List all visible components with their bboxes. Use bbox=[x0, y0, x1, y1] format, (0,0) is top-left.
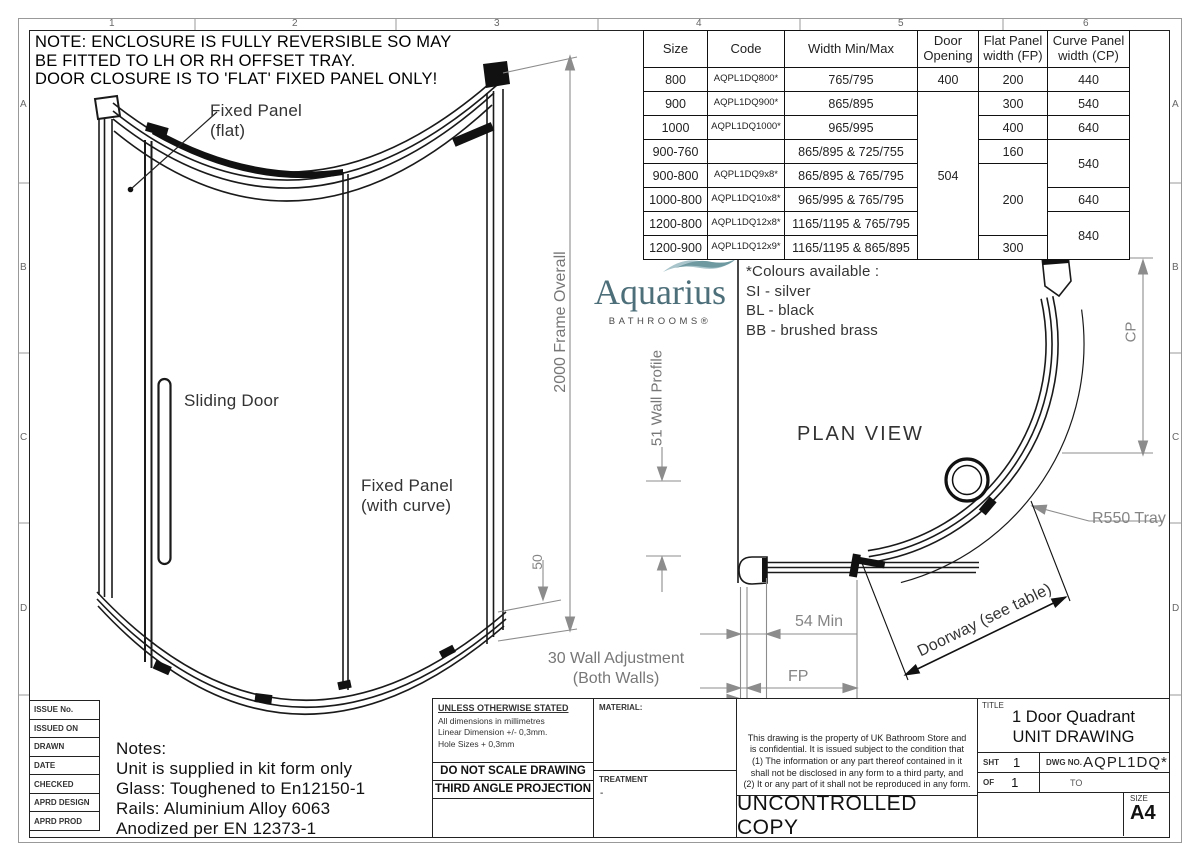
size-spec-table: Size Code Width Min/Max Door Opening Fla… bbox=[643, 30, 1130, 260]
material-label: MATERIAL: bbox=[599, 703, 731, 712]
dim-wall-profile: 51 Wall Profile bbox=[649, 350, 666, 446]
cell-code: AQPL1DQ800* bbox=[708, 68, 785, 92]
col-fp: Flat Panel width (FP) bbox=[979, 31, 1048, 68]
tolerance-title: UNLESS OTHERWISE STATED bbox=[438, 703, 588, 713]
tolerance-box: UNLESS OTHERWISE STATED All dimensions i… bbox=[432, 698, 594, 838]
dwg-label: DWG NO. bbox=[1040, 758, 1082, 767]
dim-wall-adjustment: 30 Wall Adjustment (Both Walls) bbox=[530, 649, 702, 689]
size-value: A4 bbox=[1130, 803, 1169, 824]
issue-row: ISSUE No. bbox=[30, 701, 99, 719]
third-angle: THIRD ANGLE PROJECTION bbox=[433, 780, 593, 798]
issue-row: CHECKED bbox=[30, 774, 99, 793]
cell-width: 865/895 & 765/795 bbox=[785, 164, 918, 188]
zone-row-d-left: D bbox=[20, 603, 27, 614]
cell-size: 1000 bbox=[644, 116, 708, 140]
label-r550-tray: R550 Tray bbox=[1092, 510, 1166, 528]
col-door-opening: Door Opening bbox=[918, 31, 979, 68]
label-fixed-panel-flat: Fixed Panel (flat) bbox=[210, 101, 302, 140]
uncontrolled-copy: UNCONTROLLED COPY bbox=[737, 795, 977, 836]
reversible-note: NOTE: ENCLOSURE IS FULLY REVERSIBLE SO M… bbox=[35, 33, 451, 89]
cell-code: AQPL1DQ12x9* bbox=[708, 236, 785, 260]
treatment-label: TREATMENT bbox=[599, 775, 731, 784]
do-not-scale: DO NOT SCALE DRAWING bbox=[433, 762, 593, 780]
issue-row: DATE bbox=[30, 756, 99, 775]
dim-50: 50 bbox=[529, 554, 545, 570]
zone-row-d-right: D bbox=[1172, 603, 1179, 614]
cell-width: 865/895 bbox=[785, 92, 918, 116]
cell-cp-merged: 540 bbox=[1048, 140, 1130, 188]
of-value: 1 bbox=[1011, 775, 1018, 790]
cell-size: 1200-800 bbox=[644, 212, 708, 236]
disclaimer-box: This drawing is the property of UK Bathr… bbox=[737, 698, 978, 838]
cell-size: 900-760 bbox=[644, 140, 708, 164]
zone-row-a-left: A bbox=[20, 99, 27, 110]
cell-cp: 440 bbox=[1048, 68, 1130, 92]
issue-row: ISSUED ON bbox=[30, 719, 99, 738]
cell-fp: 400 bbox=[979, 116, 1048, 140]
sht-label: SHT bbox=[978, 758, 999, 767]
dim-54-min: 54 Min bbox=[795, 613, 843, 631]
material-box: MATERIAL: TREATMENT - bbox=[594, 698, 737, 838]
cell-width: 1165/1195 & 865/895 bbox=[785, 236, 918, 260]
to-label: TO bbox=[1040, 778, 1082, 788]
colours-note: *Colours available : SI - silver BL - bl… bbox=[746, 262, 879, 340]
cell-cp: 640 bbox=[1048, 188, 1130, 212]
cell-size: 900-800 bbox=[644, 164, 708, 188]
dim-cp: CP bbox=[1123, 322, 1140, 343]
cell-width: 865/895 & 725/755 bbox=[785, 140, 918, 164]
cell-size: 900 bbox=[644, 92, 708, 116]
zone-col-5: 5 bbox=[898, 18, 904, 29]
table-row: 1000-800 AQPL1DQ10x8* 965/995 & 765/795 … bbox=[644, 188, 1130, 212]
logo-wordmark: Aquarius bbox=[588, 271, 732, 313]
cell-code: AQPL1DQ9x8* bbox=[708, 164, 785, 188]
cell-width: 1165/1195 & 765/795 bbox=[785, 212, 918, 236]
logo-tagline: BATHROOMS® bbox=[588, 316, 732, 327]
cell-width: 765/795 bbox=[785, 68, 918, 92]
cell-cp-merged: 840 bbox=[1048, 212, 1130, 260]
cell-code-empty bbox=[708, 140, 785, 164]
cell-size: 1200-900 bbox=[644, 236, 708, 260]
cell-fp: 160 bbox=[979, 140, 1048, 164]
cell-fp: 200 bbox=[979, 68, 1048, 92]
label-sliding-door: Sliding Door bbox=[184, 391, 279, 411]
cell-size: 1000-800 bbox=[644, 188, 708, 212]
issue-box: ISSUE No. ISSUED ON DRAWN DATE CHECKED A… bbox=[29, 700, 100, 831]
disclaimer-text: This drawing is the property of UK Bathr… bbox=[743, 733, 970, 791]
elevation-black-fittings bbox=[128, 61, 510, 704]
cell-cp: 540 bbox=[1048, 92, 1130, 116]
issue-row: APRD DESIGN bbox=[30, 793, 99, 812]
table-row: 800 AQPL1DQ800* 765/795 400 200 440 bbox=[644, 68, 1130, 92]
title-label: TITLE bbox=[982, 701, 1004, 710]
cell-code: AQPL1DQ10x8* bbox=[708, 188, 785, 212]
zone-row-b-left: B bbox=[20, 262, 27, 273]
treatment-value: - bbox=[599, 788, 731, 799]
sht-value: 1 bbox=[1013, 755, 1020, 770]
title-box: TITLE 1 Door Quadrant UNIT DRAWING SHT 1… bbox=[978, 698, 1170, 838]
table-row: 900-760 865/895 & 725/755 160 540 bbox=[644, 140, 1130, 164]
cell-code: AQPL1DQ900* bbox=[708, 92, 785, 116]
plan-view-title: PLAN VIEW bbox=[797, 423, 924, 446]
zone-row-c-left: C bbox=[20, 432, 27, 443]
col-size: Size bbox=[644, 31, 708, 68]
zone-col-2: 2 bbox=[292, 18, 298, 29]
tolerance-body: All dimensions in millimetres Linear Dim… bbox=[438, 716, 588, 750]
zone-col-1: 1 bbox=[109, 18, 115, 29]
cell-fp: 300 bbox=[979, 92, 1048, 116]
cell-door-merged: 504 bbox=[918, 92, 979, 260]
dim-fp: FP bbox=[788, 668, 808, 686]
dim-frame-overall: 2000 Frame Overall bbox=[552, 251, 570, 392]
issue-row: DRAWN bbox=[30, 737, 99, 756]
cell-door: 400 bbox=[918, 68, 979, 92]
drawing-sheet: 1 2 3 4 5 6 A B C D A B C D NOTE: ENCLOS… bbox=[0, 0, 1200, 848]
zone-col-3: 3 bbox=[494, 18, 500, 29]
cell-size: 800 bbox=[644, 68, 708, 92]
cell-width: 965/995 & 765/795 bbox=[785, 188, 918, 212]
cell-fp-merged: 200 bbox=[979, 164, 1048, 236]
zone-col-6: 6 bbox=[1083, 18, 1089, 29]
zone-col-4: 4 bbox=[696, 18, 702, 29]
cell-fp: 300 bbox=[979, 236, 1048, 260]
issue-row: APRD PROD bbox=[30, 811, 99, 830]
cell-code: AQPL1DQ1000* bbox=[708, 116, 785, 140]
col-code: Code bbox=[708, 31, 785, 68]
of-label: OF bbox=[978, 778, 994, 787]
table-row: 1200-800 AQPL1DQ12x8* 1165/1195 & 765/79… bbox=[644, 212, 1130, 236]
cell-cp: 640 bbox=[1048, 116, 1130, 140]
label-fixed-panel-curve: Fixed Panel (with curve) bbox=[361, 476, 453, 515]
cell-code: AQPL1DQ12x8* bbox=[708, 212, 785, 236]
notes-text: Notes: Unit is supplied in kit form only… bbox=[116, 739, 365, 838]
cell-width: 965/995 bbox=[785, 116, 918, 140]
table-row: 900 AQPL1DQ900* 865/895 504 300 540 bbox=[644, 92, 1130, 116]
col-width: Width Min/Max bbox=[785, 31, 918, 68]
zone-row-a-right: A bbox=[1172, 99, 1179, 110]
col-cp: Curve Panel width (CP) bbox=[1048, 31, 1130, 68]
drawing-title: 1 Door Quadrant UNIT DRAWING bbox=[978, 699, 1169, 748]
table-row: 1000 AQPL1DQ1000* 965/995 400 640 bbox=[644, 116, 1130, 140]
dwg-value: AQPL1DQ* bbox=[1082, 754, 1169, 771]
zone-row-c-right: C bbox=[1172, 432, 1179, 443]
zone-row-b-right: B bbox=[1172, 262, 1179, 273]
table-header-row: Size Code Width Min/Max Door Opening Fla… bbox=[644, 31, 1130, 68]
logo-wave-icon bbox=[663, 258, 737, 272]
